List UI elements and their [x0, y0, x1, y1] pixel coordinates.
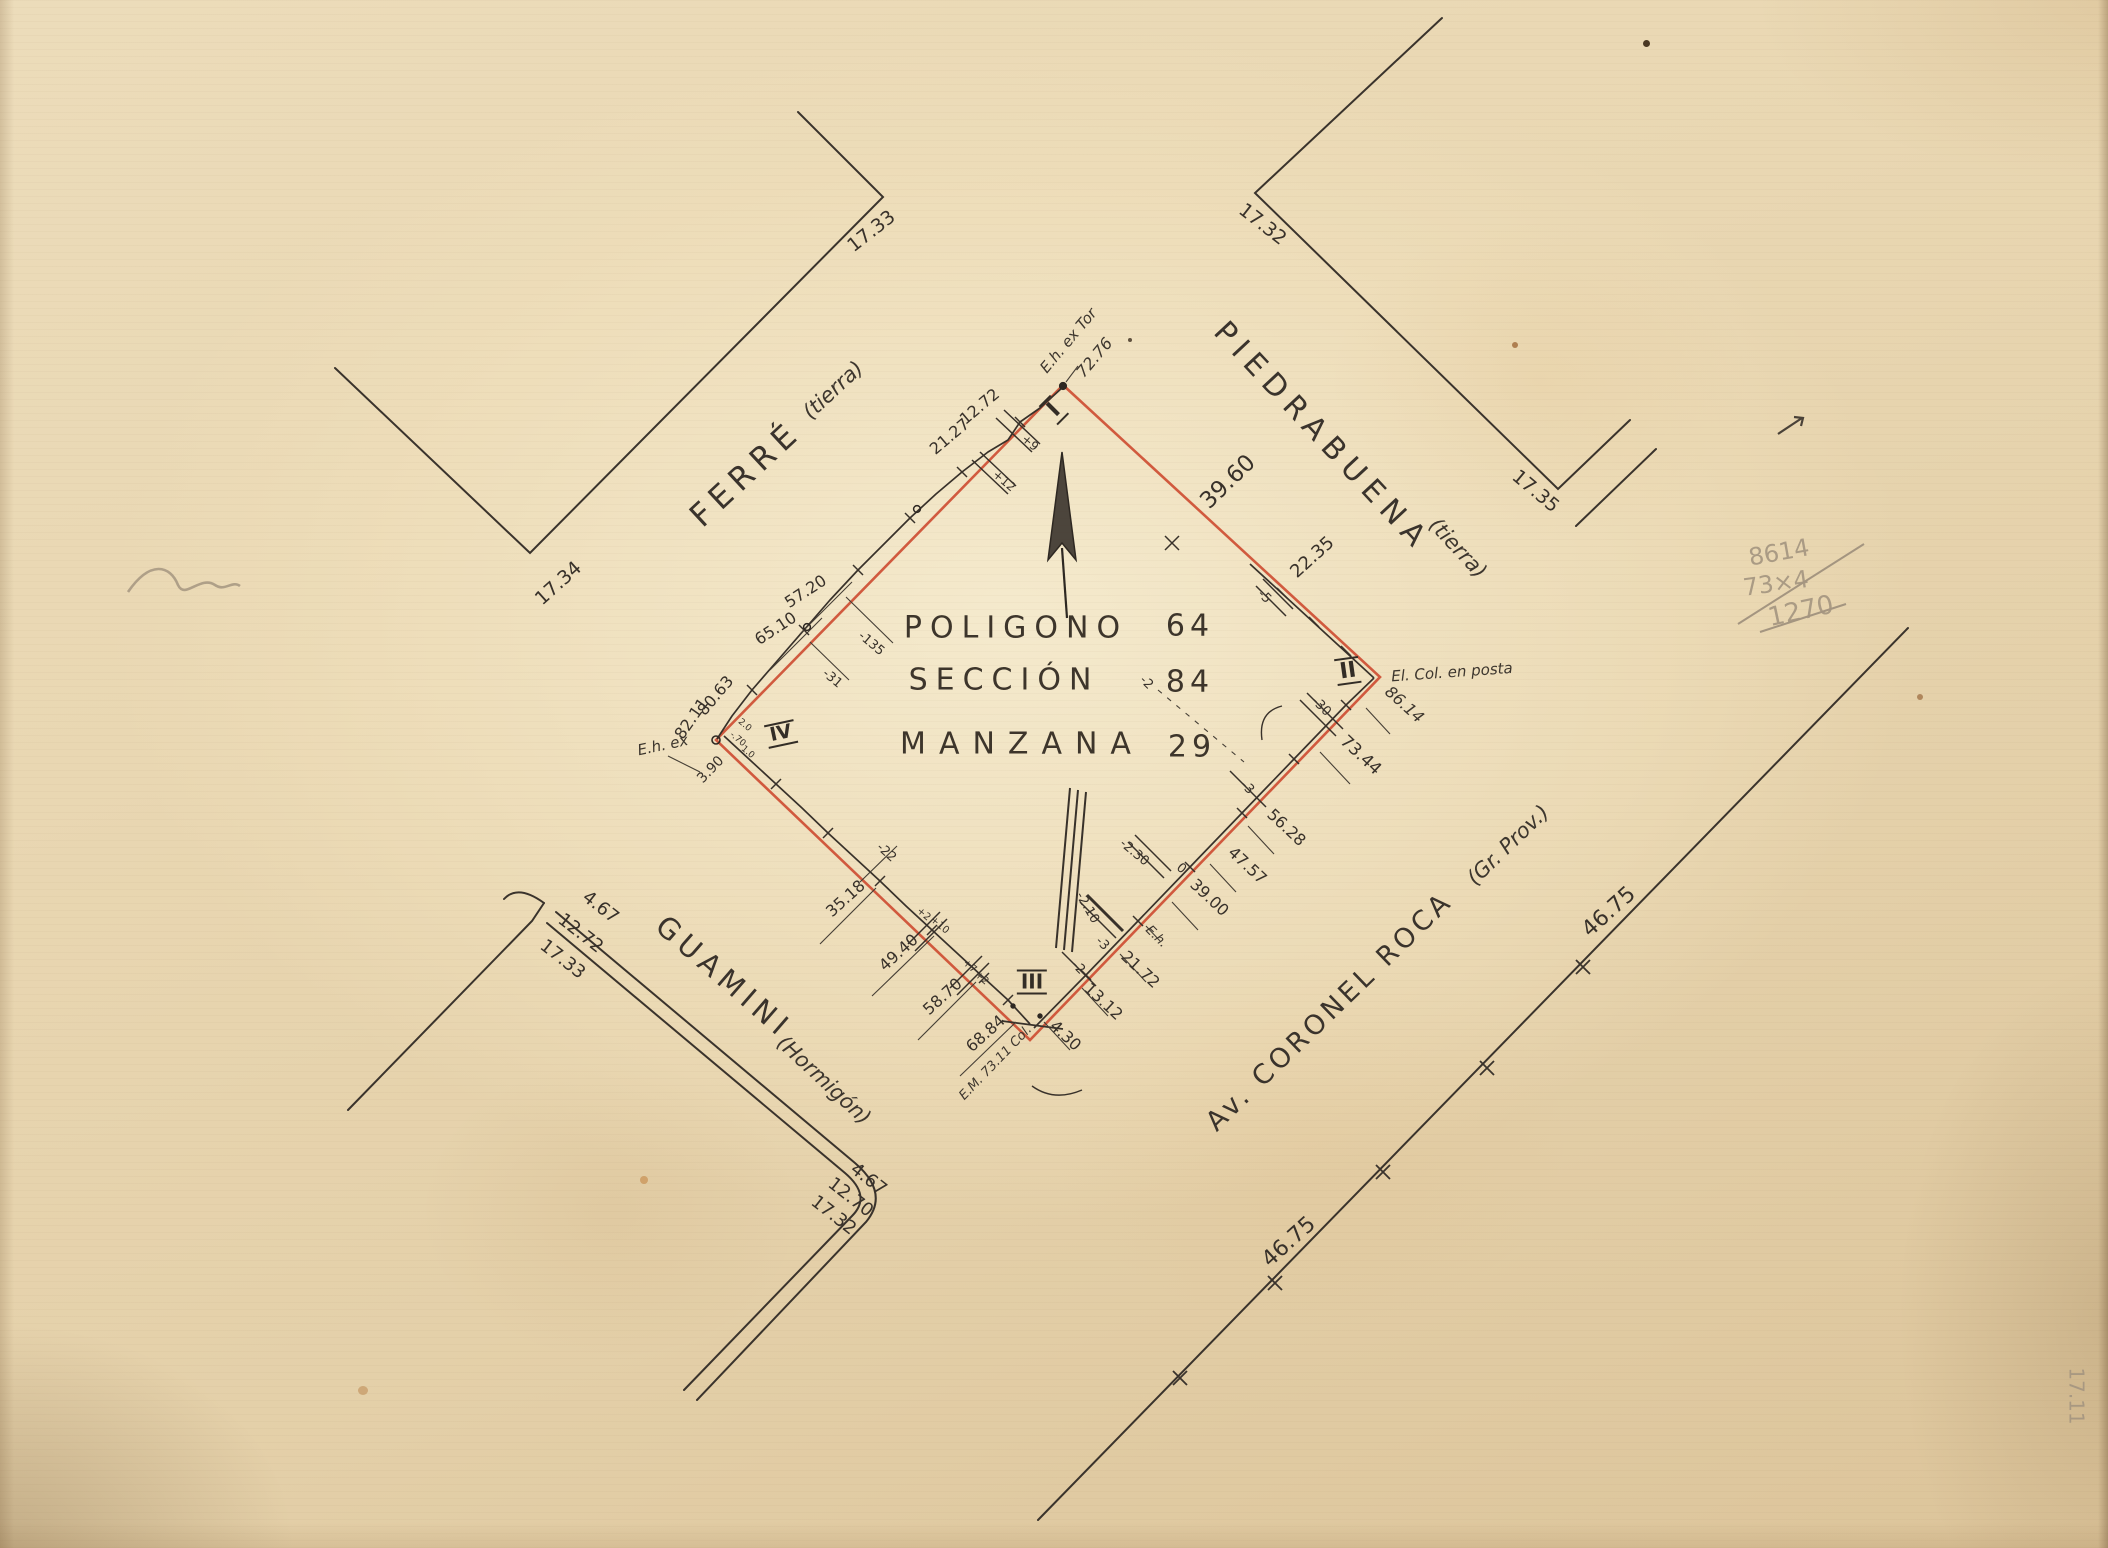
monument-note: E.h.: [1142, 923, 1169, 950]
street-coronel-roca-surface: (Gr. Prov.): [1463, 801, 1553, 889]
title-manzana: MANZANA: [900, 728, 1144, 760]
offset-dim: -22: [874, 841, 899, 865]
title-seccion-value: 84: [1166, 666, 1214, 698]
offset-dim: +9: [1019, 432, 1041, 453]
corner-dim: 17.33: [844, 207, 899, 256]
edge-dim: 35.18: [823, 877, 868, 920]
corner-dim: 17.34: [532, 558, 586, 609]
edge-dim: 3.90: [695, 754, 727, 787]
edge-dim: 58.70: [920, 975, 965, 1018]
offset-dim: -2: [1137, 674, 1156, 693]
monument-note: El. Col. en posta: [1391, 661, 1513, 685]
offset-dim: -3: [1238, 779, 1257, 798]
pencil-calc-line: 1270: [1766, 592, 1836, 632]
edge-dim: 49.40: [876, 931, 921, 974]
street-ferre-surface: (tierra): [799, 357, 868, 423]
street-piedrabuena: PIEDRABUENA: [1208, 316, 1437, 558]
corner-dim: 17.35: [1508, 467, 1562, 517]
edge-dim: 65.10: [752, 609, 800, 648]
offset-dim: 2.0: [735, 718, 752, 734]
offset-dim: +10: [928, 915, 951, 937]
edge-dim: 56.28: [1264, 806, 1309, 850]
offset-dim: -2: [1069, 959, 1088, 978]
offset-dim: -31: [819, 667, 844, 691]
monument-note: 72.76: [1074, 335, 1116, 381]
offset-dim: -135: [855, 629, 886, 658]
edge-dim: 21.27: [927, 416, 973, 458]
edge-dim: 22.35: [1288, 534, 1339, 583]
edge-dim: 73.44: [1336, 733, 1384, 779]
street-guamini: GUAMINI: [650, 910, 798, 1044]
pencil-margin-note: 17.11: [2066, 1367, 2087, 1424]
vertex-iv: IV: [764, 719, 798, 749]
offset-dim: +12: [990, 468, 1017, 494]
roca-dim: 46.75: [1578, 882, 1640, 941]
scanned-survey-plan: { "document": { "kind": "hand-drawn cada…: [0, 0, 2108, 1548]
offset-dim: -5: [1255, 588, 1274, 607]
title-seccion: SECCIÓN: [909, 664, 1100, 696]
street-piedrabuena-surface: (tierra): [1425, 514, 1491, 583]
offset-dim: -30: [1309, 695, 1334, 720]
street-ferre: FERRÉ: [684, 415, 808, 534]
edge-dim: 57.20: [782, 572, 830, 611]
monument-note: 86.14: [1381, 683, 1426, 726]
edge-dim: 4.30: [1046, 1018, 1084, 1055]
street-coronel-roca: Av. CORONEL ROCA: [1201, 887, 1458, 1137]
street-guamini-surface: (Hormigón): [773, 1031, 875, 1129]
corner-dim: 4.67: [578, 888, 621, 928]
offset-dim: 0: [1173, 861, 1188, 877]
vertex-iii: III: [1017, 970, 1047, 995]
edge-dim: 21.72: [1118, 948, 1163, 992]
vertex-i: I: [1039, 395, 1070, 426]
corner-dim: 17.32: [1234, 200, 1289, 249]
edge-dim: 39.00: [1187, 876, 1232, 920]
offset-dim: -3: [1093, 935, 1112, 954]
edge-dim: 39.60: [1196, 450, 1260, 513]
plan-annotations: POLIGONO64SECCIÓN84MANZANA29FERRÉ(tierra…: [0, 0, 2108, 1548]
edge-dim: 13.12: [1081, 980, 1126, 1024]
offset-dim: -2.10: [1073, 890, 1102, 926]
edge-dim: 47.57: [1225, 844, 1270, 888]
edge-dim: 82.11: [672, 695, 712, 742]
roca-dim: 46.75: [1258, 1212, 1320, 1271]
title-poligono: POLIGONO: [904, 612, 1128, 644]
title-poligono-value: 64: [1166, 610, 1214, 642]
offset-dim: 1.0: [738, 745, 755, 761]
vertex-ii: II: [1334, 656, 1362, 686]
offset-dim: +2: [972, 970, 990, 988]
offset-dim: -2.30: [1117, 837, 1152, 869]
title-manzana-value: 29: [1168, 731, 1216, 763]
